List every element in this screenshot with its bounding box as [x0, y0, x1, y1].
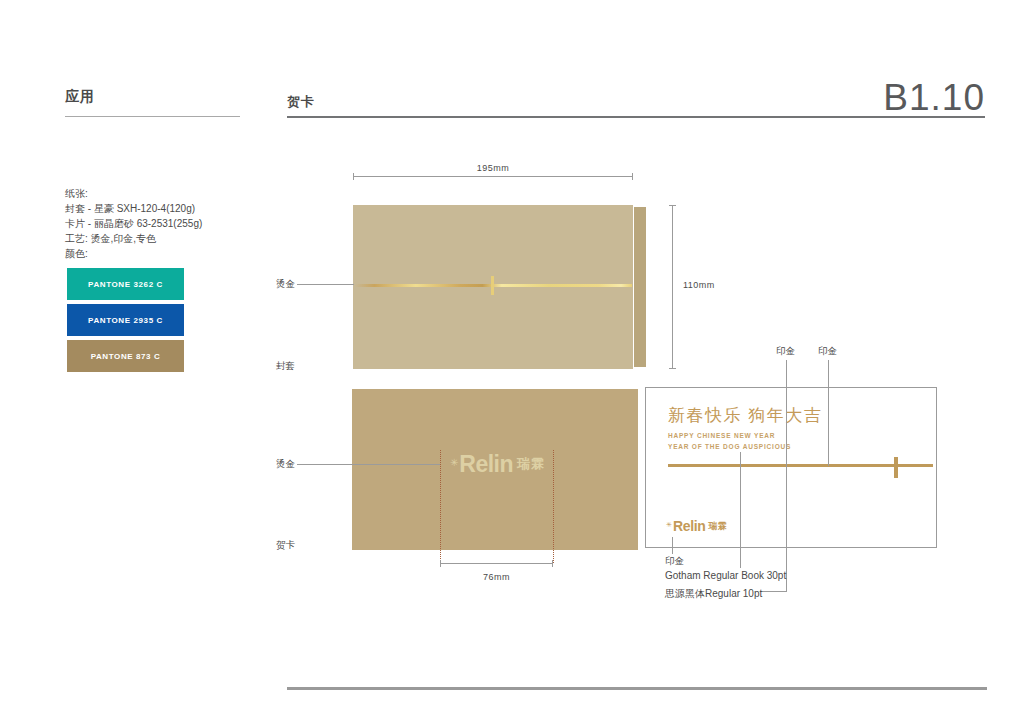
greeting-line-en-2: YEAR OF THE DOG AUSPICIOUS — [668, 443, 791, 450]
card-front-foil-leader-line — [297, 464, 440, 465]
latin-font-note: Gotham Regular Book 30pt — [665, 570, 786, 581]
page-code: B1.10 — [760, 77, 985, 119]
swatch-pantone-873c: PANTONE 873 C — [67, 340, 184, 372]
logo-chinese: 瑞霖 — [517, 455, 545, 473]
greeting-heading-cn: 新春快乐 狗年大吉 — [668, 404, 822, 427]
spec-line-paper: 纸张: — [65, 186, 202, 201]
cjk-font-leader-line — [760, 591, 787, 592]
envelope-width-dimension-line — [353, 173, 633, 180]
swatch-label: PANTONE 2935 C — [88, 316, 163, 325]
swatch-pantone-2935c: PANTONE 2935 C — [67, 304, 184, 336]
logo-mark-icon: ✳ — [666, 521, 672, 529]
latin-font-leader-line — [740, 452, 741, 568]
spec-line-process: 工艺: 烫金,印金,专色 — [65, 231, 202, 246]
logo-extent-dotted-line-right — [553, 450, 554, 563]
logo-extent-dotted-line-left — [440, 450, 441, 563]
brand-guideline-page: 应用 贺卡 B1.10 纸张: 封套 - 星豪 SXH-120-4(120g) … — [0, 0, 1024, 724]
envelope-foil-cross-mark — [491, 276, 494, 295]
envelope-foil-leader-line — [297, 284, 354, 285]
card-front-name-label: 贺卡 — [276, 539, 295, 552]
print-gold-leader-line-2 — [828, 360, 829, 466]
envelope-flap — [634, 207, 646, 367]
logo-chinese: 瑞霖 — [709, 520, 728, 533]
swatch-label: PANTONE 873 C — [91, 352, 161, 361]
logo-latin: Relin — [459, 451, 513, 478]
print-gold-leader-line-1 — [786, 360, 787, 591]
paper-specs: 纸张: 封套 - 星豪 SXH-120-4(120g) 卡片 - 丽晶磨砂 63… — [65, 186, 202, 261]
inner-card-logo: ✳ Relin 瑞霖 — [666, 518, 728, 534]
envelope-width-dimension-label: 195mm — [353, 163, 633, 173]
print-gold-annotation-1: 印金 — [776, 345, 795, 358]
spec-line-card-stock: 卡片 - 丽晶磨砂 63-2531(255g) — [65, 216, 202, 231]
spec-line-envelope-stock: 封套 - 星豪 SXH-120-4(120g) — [65, 201, 202, 216]
envelope-foil-annotation: 烫金 — [276, 278, 295, 291]
envelope-name-label: 封套 — [276, 360, 295, 373]
logo-latin: Relin — [673, 518, 706, 534]
card-front-logo: ✳ Relin 瑞霖 — [441, 450, 554, 478]
logo-width-dimension-label: 76mm — [440, 572, 553, 582]
print-gold-leader-line-bottom — [672, 537, 673, 554]
print-gold-annotation-2: 印金 — [818, 345, 837, 358]
cjk-font-note: 思源黑体Regular 10pt — [665, 587, 762, 601]
section-title-underline — [65, 116, 240, 117]
card-front-foil-annotation: 烫金 — [276, 458, 295, 471]
swatch-label: PANTONE 3262 C — [88, 280, 163, 289]
footer-rule — [287, 687, 987, 690]
greeting-line-en-1: HAPPY CHINESE NEW YEAR — [668, 432, 775, 439]
envelope-height-dimension-line — [669, 205, 676, 369]
envelope-height-dimension-label: 110mm — [683, 280, 715, 290]
logo-mark-icon: ✳ — [450, 457, 458, 468]
inner-card-gold-cross-mark — [894, 457, 898, 478]
print-gold-annotation-bottom: 印金 — [665, 555, 684, 568]
title-rule — [287, 116, 985, 118]
logo-width-dimension-line — [440, 560, 553, 567]
spec-line-color: 颜色: — [65, 246, 202, 261]
swatch-pantone-3262c: PANTONE 3262 C — [67, 268, 184, 300]
section-title: 应用 — [65, 88, 95, 106]
page-title: 贺卡 — [287, 93, 315, 111]
